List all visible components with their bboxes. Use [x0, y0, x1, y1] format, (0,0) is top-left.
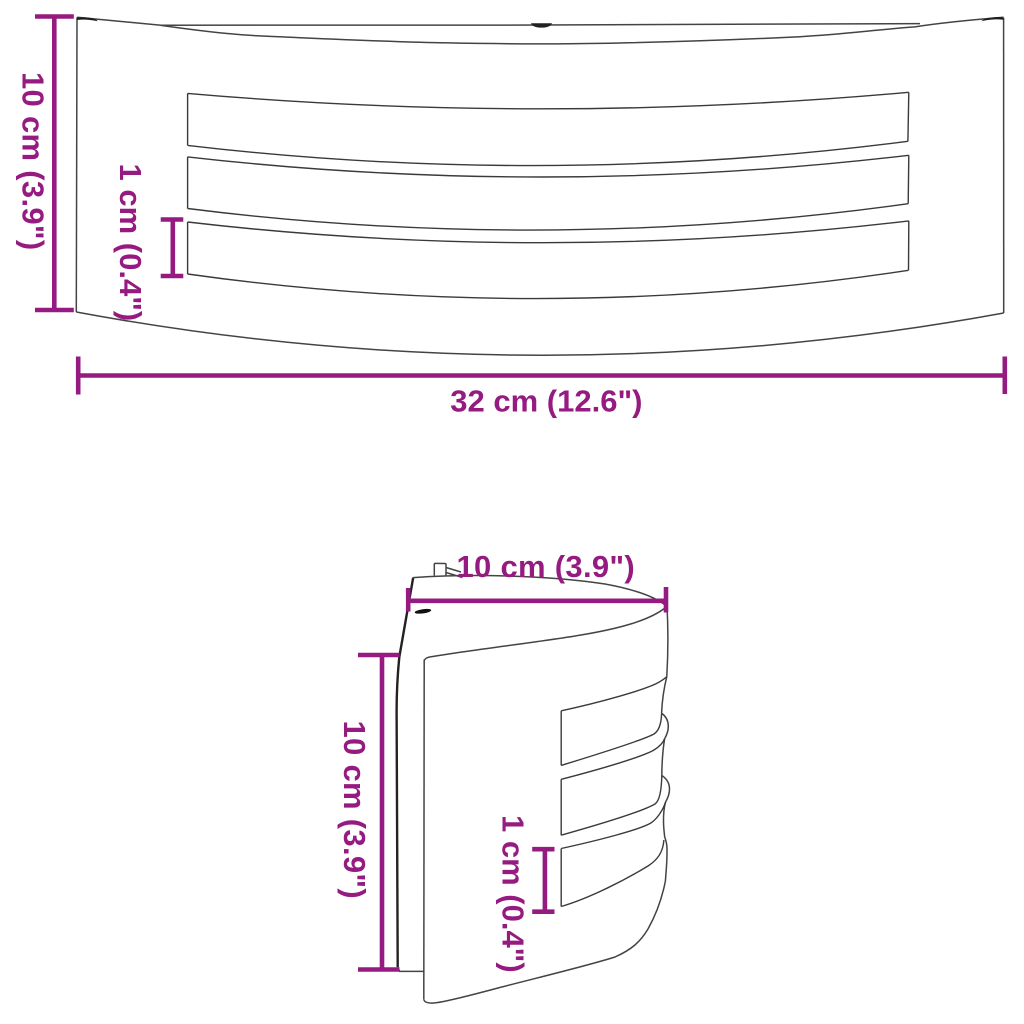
svg-text:1 cm (0.4"): 1 cm (0.4") — [113, 164, 148, 322]
svg-text:1 cm (0.4"): 1 cm (0.4") — [496, 815, 531, 973]
svg-text:32 cm (12.6"): 32 cm (12.6") — [450, 384, 642, 419]
svg-text:10 cm (3.9"): 10 cm (3.9") — [457, 549, 636, 584]
svg-text:10 cm (3.9"): 10 cm (3.9") — [16, 72, 51, 251]
svg-text:10 cm (3.9"): 10 cm (3.9") — [337, 721, 372, 900]
